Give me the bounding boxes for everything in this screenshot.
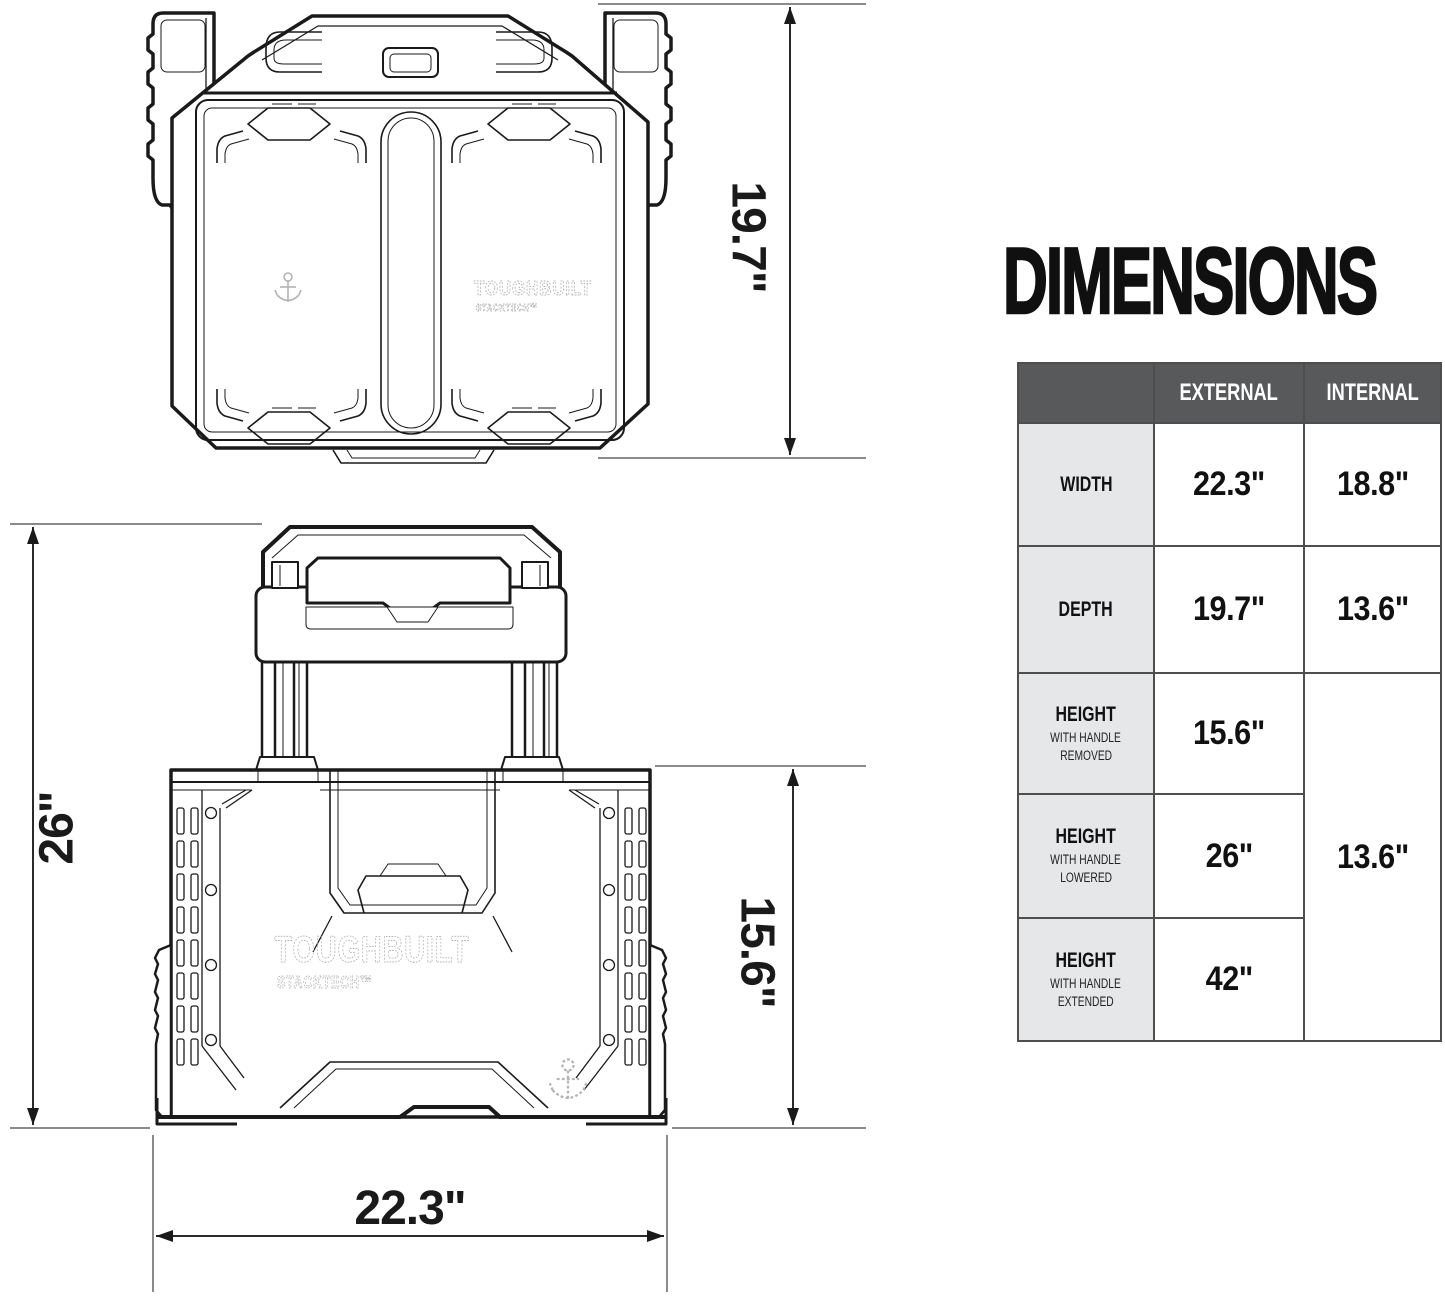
height-removed-external-value: 15.6" (1154, 673, 1304, 794)
dimension-label-box-height: 15.6" (731, 896, 784, 1007)
dimensions-table: EXTERNAL INTERNAL WIDTH 22.3" 18.8" DEPT… (1017, 362, 1442, 1042)
dimension-label-width: 22.3" (354, 1182, 465, 1235)
height-internal-merged-value: 13.6" (1304, 673, 1441, 1041)
dimensions-spec-sheet: { "title": "DIMENSIONS", "brand": { "log… (0, 0, 1445, 1296)
width-internal-value: 18.8" (1304, 423, 1441, 546)
width-external-value: 22.3" (1154, 423, 1304, 546)
side-grip-right (650, 945, 666, 1117)
page-title: DIMENSIONS (1003, 234, 1376, 328)
header-blank-cell (1018, 363, 1154, 423)
technical-drawings: TOUGHBUILT STACKTECH™ (0, 0, 880, 1296)
top-view-drawing: TOUGHBUILT STACKTECH™ (148, 13, 671, 463)
telescoping-rails (256, 656, 563, 770)
depth-internal-value: 13.6" (1304, 546, 1441, 673)
row-label-height-lowered: HEIGHT WITH HANDLELOWERED (1018, 794, 1154, 918)
table-header-row: EXTERNAL INTERNAL (1018, 363, 1441, 423)
row-label-depth: DEPTH (1018, 546, 1154, 673)
brand-logo-front-view: TOUGHBUILT (275, 929, 470, 970)
row-label-width: WIDTH (1018, 423, 1154, 546)
row-label-height-removed: HEIGHT WITH HANDLEREMOVED (1018, 673, 1154, 794)
front-view-drawing: TOUGHBUILT STACKTECH™ (155, 527, 666, 1124)
brand-logo-top-view: TOUGHBUILT (474, 278, 592, 300)
table-row: DEPTH 19.7" 13.6" (1018, 546, 1441, 673)
depth-external-value: 19.7" (1154, 546, 1304, 673)
dimension-label-depth: 19.7" (722, 181, 775, 292)
header-internal: INTERNAL (1304, 363, 1441, 423)
row-label-height-extended: HEIGHT WITH HANDLEEXTENDED (1018, 918, 1154, 1041)
height-lowered-external-value: 26" (1154, 794, 1304, 918)
dimension-label-total-height: 26" (31, 791, 84, 864)
brand-logo-sub-front-view: STACKTECH™ (277, 972, 373, 992)
side-grip-left (155, 945, 171, 1117)
brand-logo-sub-top-view: STACKTECH™ (476, 302, 538, 314)
table-row: WIDTH 22.3" 18.8" (1018, 423, 1441, 546)
table-row: HEIGHT WITH HANDLEREMOVED 15.6" 13.6" (1018, 673, 1441, 794)
height-extended-external-value: 42" (1154, 918, 1304, 1041)
header-external: EXTERNAL (1154, 363, 1304, 423)
